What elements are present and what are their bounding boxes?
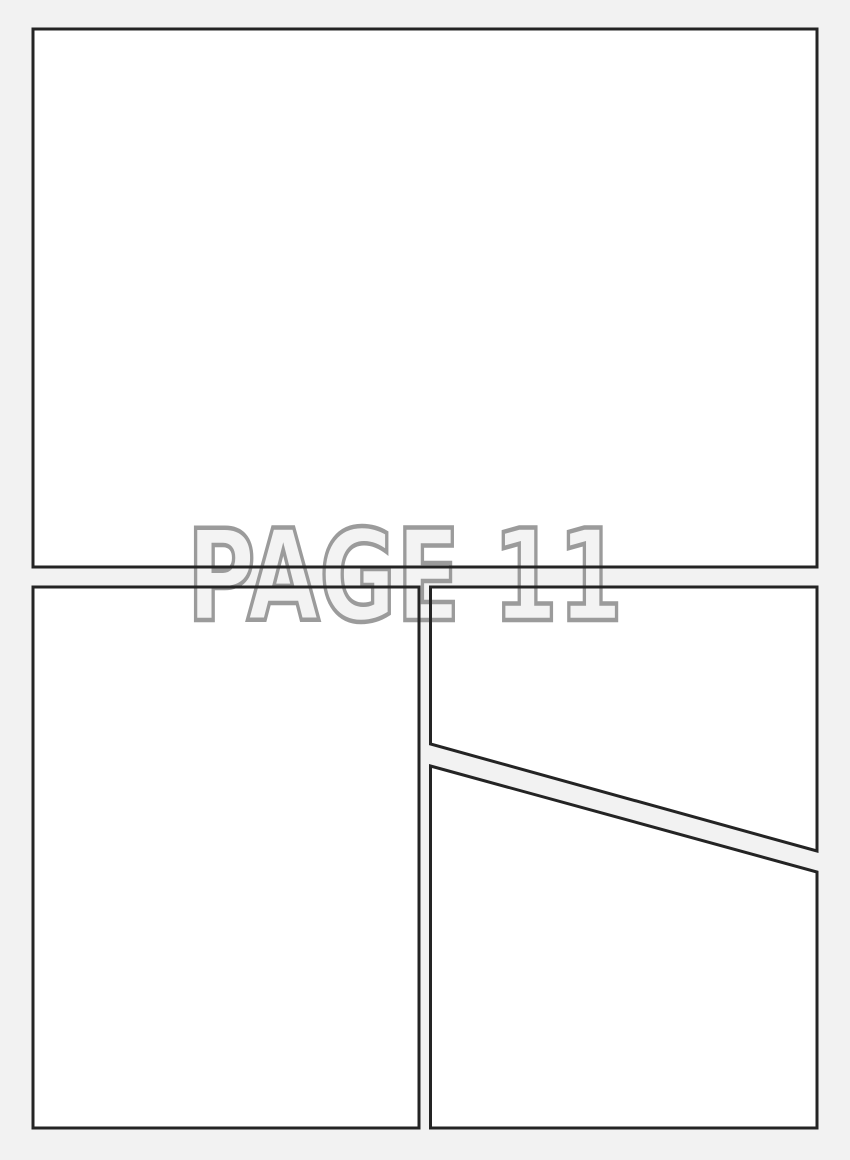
page-number-watermark: PAGE 11: [187, 502, 623, 650]
panel-top-fill: [33, 29, 817, 567]
panel-bottom-left-fill: [33, 587, 419, 1128]
comic-page: PAGE 11: [0, 0, 850, 1160]
